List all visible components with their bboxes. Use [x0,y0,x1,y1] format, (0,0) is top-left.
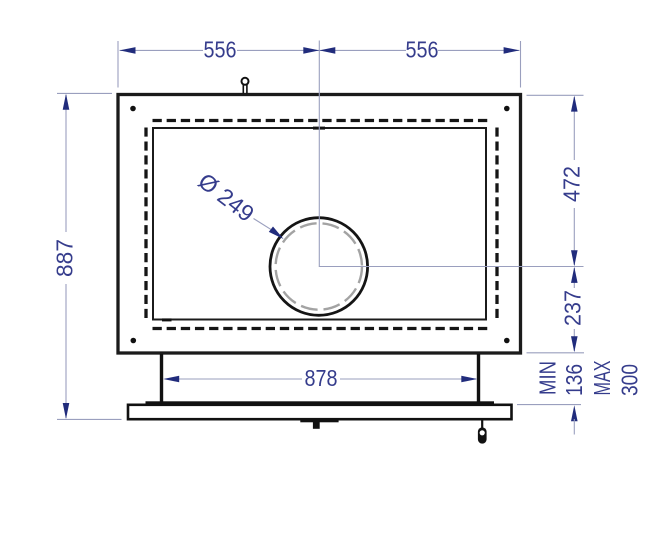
svg-text:556: 556 [204,37,237,63]
svg-text:878: 878 [305,365,338,391]
svg-text:300: 300 [617,364,643,396]
svg-text:237: 237 [560,290,586,326]
svg-text:472: 472 [559,166,585,202]
svg-text:136: 136 [561,364,587,396]
svg-text:556: 556 [406,37,439,63]
svg-text:MIN: MIN [535,361,561,395]
svg-text:887: 887 [52,239,78,277]
svg-text:MAX: MAX [589,361,615,396]
